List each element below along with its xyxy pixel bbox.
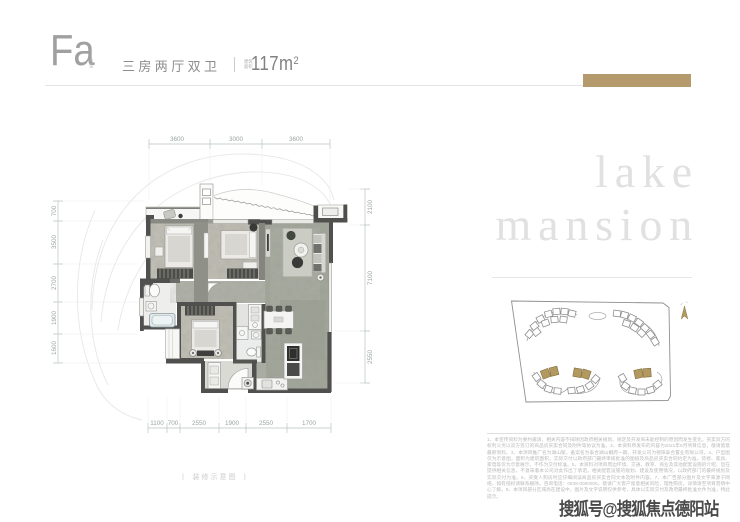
svg-text:3600: 3600 — [289, 136, 304, 143]
svg-text:700: 700 — [51, 205, 58, 216]
svg-text:2550: 2550 — [192, 420, 207, 427]
svg-text:1100: 1100 — [150, 420, 164, 427]
svg-text:1700: 1700 — [302, 420, 317, 427]
svg-text:1600: 1600 — [51, 341, 58, 356]
svg-text:3600: 3600 — [170, 136, 185, 143]
svg-text:2100: 2100 — [367, 200, 374, 215]
svg-text:2700: 2700 — [51, 276, 58, 291]
svg-text:7100: 7100 — [367, 271, 374, 286]
svg-text:700: 700 — [168, 420, 179, 427]
svg-text:1900: 1900 — [51, 311, 58, 326]
svg-text:1900: 1900 — [225, 420, 240, 427]
svg-text:3500: 3500 — [51, 235, 58, 250]
svg-text:3000: 3000 — [229, 136, 244, 143]
svg-text:2550: 2550 — [259, 420, 274, 427]
svg-text:2550: 2550 — [367, 350, 374, 365]
